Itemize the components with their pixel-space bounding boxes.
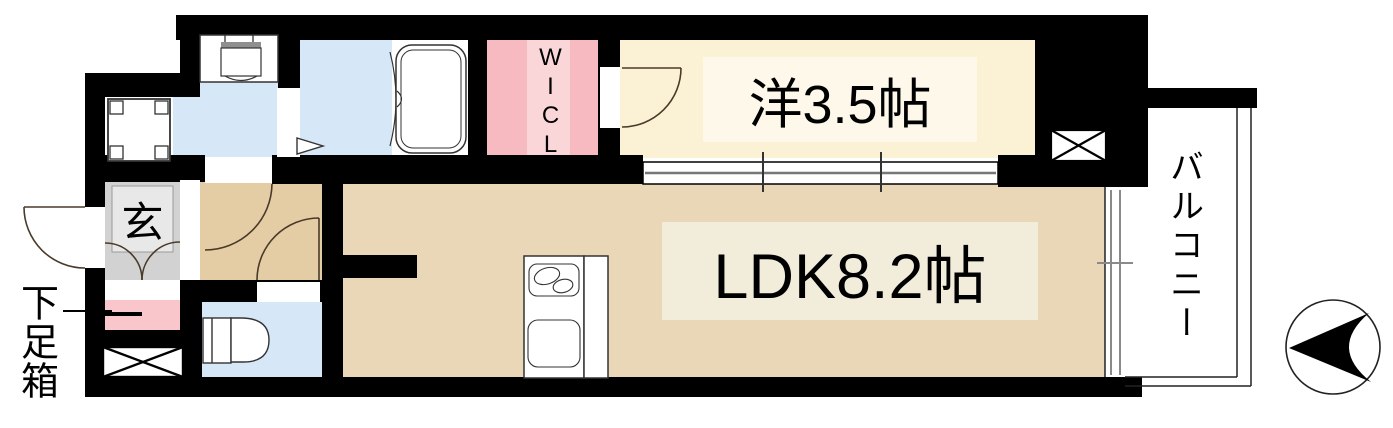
genkan-lower-gap [105,280,180,300]
washbasin [200,35,278,82]
wall-segment [468,35,487,165]
shoe-cabinet-label: 下足箱 [10,281,62,401]
duct-icon [1051,130,1106,161]
washroom-opening [205,157,272,183]
western-room-label: 洋3.5帖 [703,57,977,142]
wall-segment [180,15,200,97]
wicl-label: WICL [531,38,569,166]
toilet [203,318,269,363]
wall-segment [322,170,343,377]
floor-plan: 洋3.5帖 LDK8.2帖 WICL 玄 下足箱 バルコニー [0,0,1393,428]
wall-segment [105,330,180,347]
wall-segment [1147,88,1257,108]
wall-segment [176,15,1148,40]
kitchen-sink [528,320,580,367]
kitchen-counter [524,256,608,378]
window-gap [1105,187,1125,377]
balcony-label: バルコニー [1160,134,1208,358]
toilet-opening [257,282,320,302]
duct-icon [103,347,183,377]
wall-segment [343,255,417,278]
washbasin-faucet [221,42,261,48]
compass-icon [1286,300,1380,394]
toilet-tank [203,318,231,363]
washer-pan [108,99,170,161]
genkan-label: 玄 [112,186,173,252]
western-opening [600,67,620,128]
wall-segment [85,377,1142,397]
genkan-step-gap [180,180,200,280]
hallway-floor [200,178,323,280]
bathroom-floor [297,40,392,158]
wall-segment [278,35,300,90]
toilet-bowl [231,318,269,362]
wall-segment [85,73,105,207]
entrance-opening [85,207,105,268]
entrance-door-arc [24,207,85,268]
ldk-label: LDK8.2帖 [662,222,1038,320]
bathtub [390,45,466,153]
